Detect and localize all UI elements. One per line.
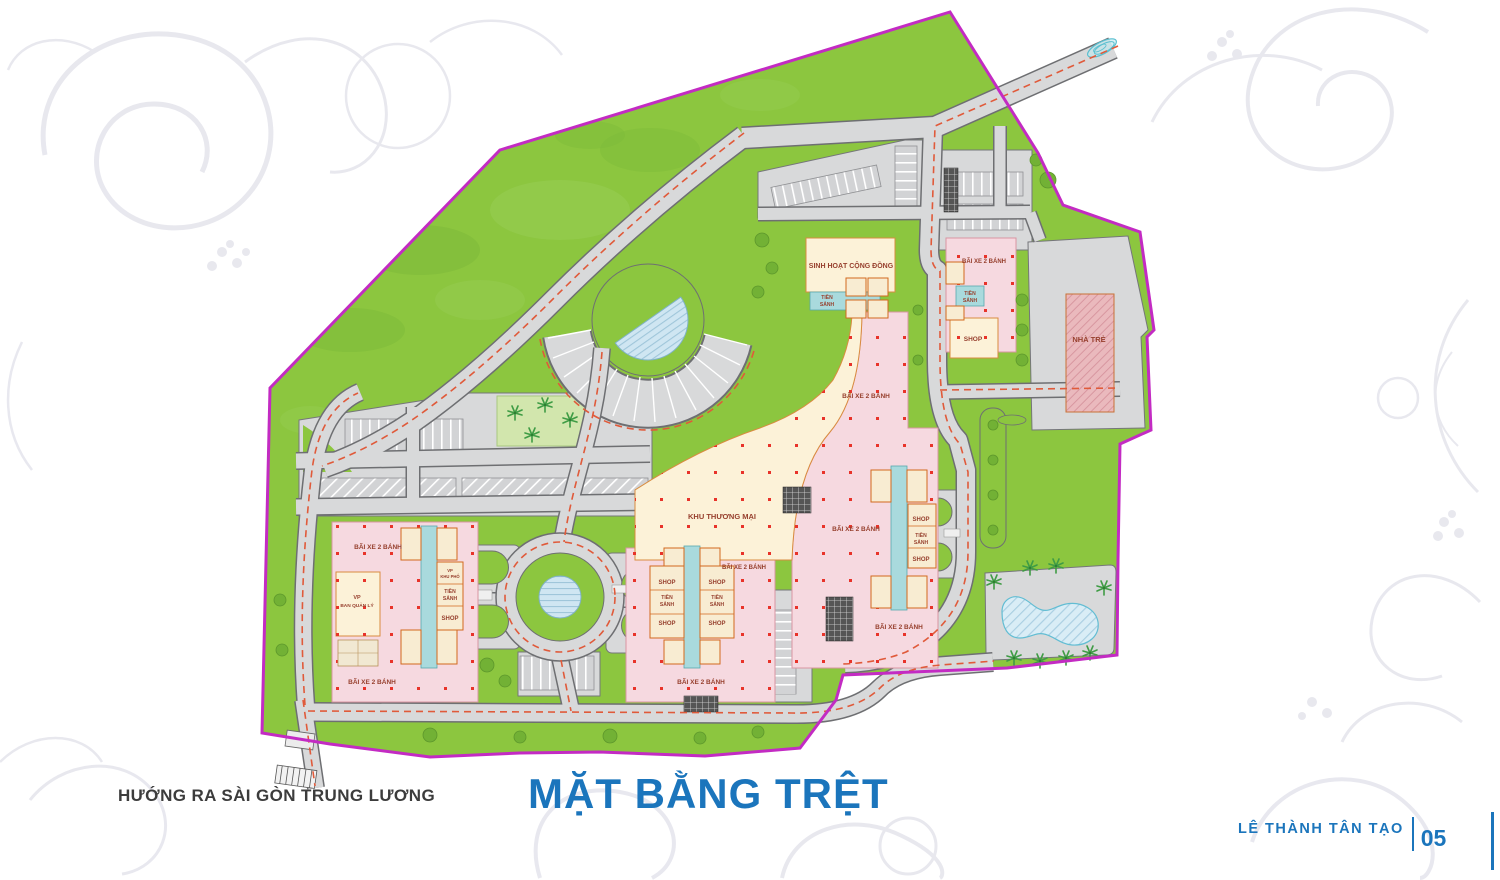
plan-label: SẢNH [710, 601, 725, 608]
plan-label: VP [447, 568, 453, 573]
plan-label: SHOP [441, 616, 458, 622]
plan-label: TIỀN [444, 588, 456, 595]
site [262, 12, 1154, 788]
plan-label: SHOP [708, 621, 725, 627]
plan-title: MẶT BẰNG TRỆT [528, 770, 889, 818]
plan-label: BÃI XE 2 BÁNH [677, 677, 725, 686]
plan-label: BÃI XE 2 BÁNH [348, 677, 396, 686]
right-edge-line [1491, 812, 1494, 870]
plan-label: SHOP [658, 580, 675, 586]
plan-label: SẢNH [820, 301, 835, 308]
project-name: LÊ THÀNH TÂN TẠO [1238, 821, 1404, 837]
plan-label: TIỀN [915, 532, 927, 539]
site-plan: SINH HOẠT CỘNG ĐỒNGTIỀNSẢNHBÃI XE 2 BÁNH… [0, 0, 1500, 880]
plan-label: BÃI XE 2 BÁNH [842, 391, 890, 400]
plan-label: TIỀN [821, 294, 833, 301]
nursery-building [1066, 294, 1114, 412]
page-number: 05 [1421, 825, 1447, 852]
page: SINH HOẠT CỘNG ĐỒNGTIỀNSẢNHBÃI XE 2 BÁNH… [0, 0, 1500, 880]
plan-label: BÃI XE 2 BÁNH [354, 542, 402, 551]
plan-label: BÃI XE 2 BÁNH [962, 258, 1006, 265]
direction-note: HƯỚNG RA SÀI GÒN TRUNG LƯƠNG [118, 786, 435, 806]
plan-label: KHU THƯƠNG MẠI [688, 512, 756, 521]
project-footer: LÊ THÀNH TÂN TẠO 05 [1238, 817, 1446, 852]
plan-label: BÃI XE 2 BÁNH [875, 622, 923, 631]
plan-label: TIỀN [964, 290, 976, 297]
footer-divider [1412, 817, 1414, 851]
plan-label: SHOP [912, 517, 929, 523]
plan-label: NHÀ TRẺ [1072, 335, 1105, 344]
plan-label: SHOP [964, 336, 983, 343]
roundabout [496, 533, 624, 661]
plan-label: SHOP [658, 621, 675, 627]
green-island-small [998, 415, 1026, 425]
plan-label: BÃI XE 2 BÁNH [722, 564, 766, 571]
plan-label: SẢNH [963, 297, 978, 304]
plan-label: SẢNH [914, 539, 929, 546]
plan-label: BAN QUẢN LÝ [340, 602, 374, 609]
plan-label: TIỀN [711, 594, 723, 601]
plan-label: VP [353, 595, 361, 601]
plan-label: KHU PHỐ [440, 574, 460, 579]
plan-label: SẢNH [660, 601, 675, 608]
roundabout-pond [539, 576, 581, 618]
plan-label: SHOP [912, 557, 929, 563]
plan-label: SHOP [708, 580, 725, 586]
plan-label: SẢNH [443, 595, 458, 602]
plan-label: BÃI XE 2 BÁNH [832, 524, 880, 533]
plan-label: TIỀN [661, 594, 673, 601]
